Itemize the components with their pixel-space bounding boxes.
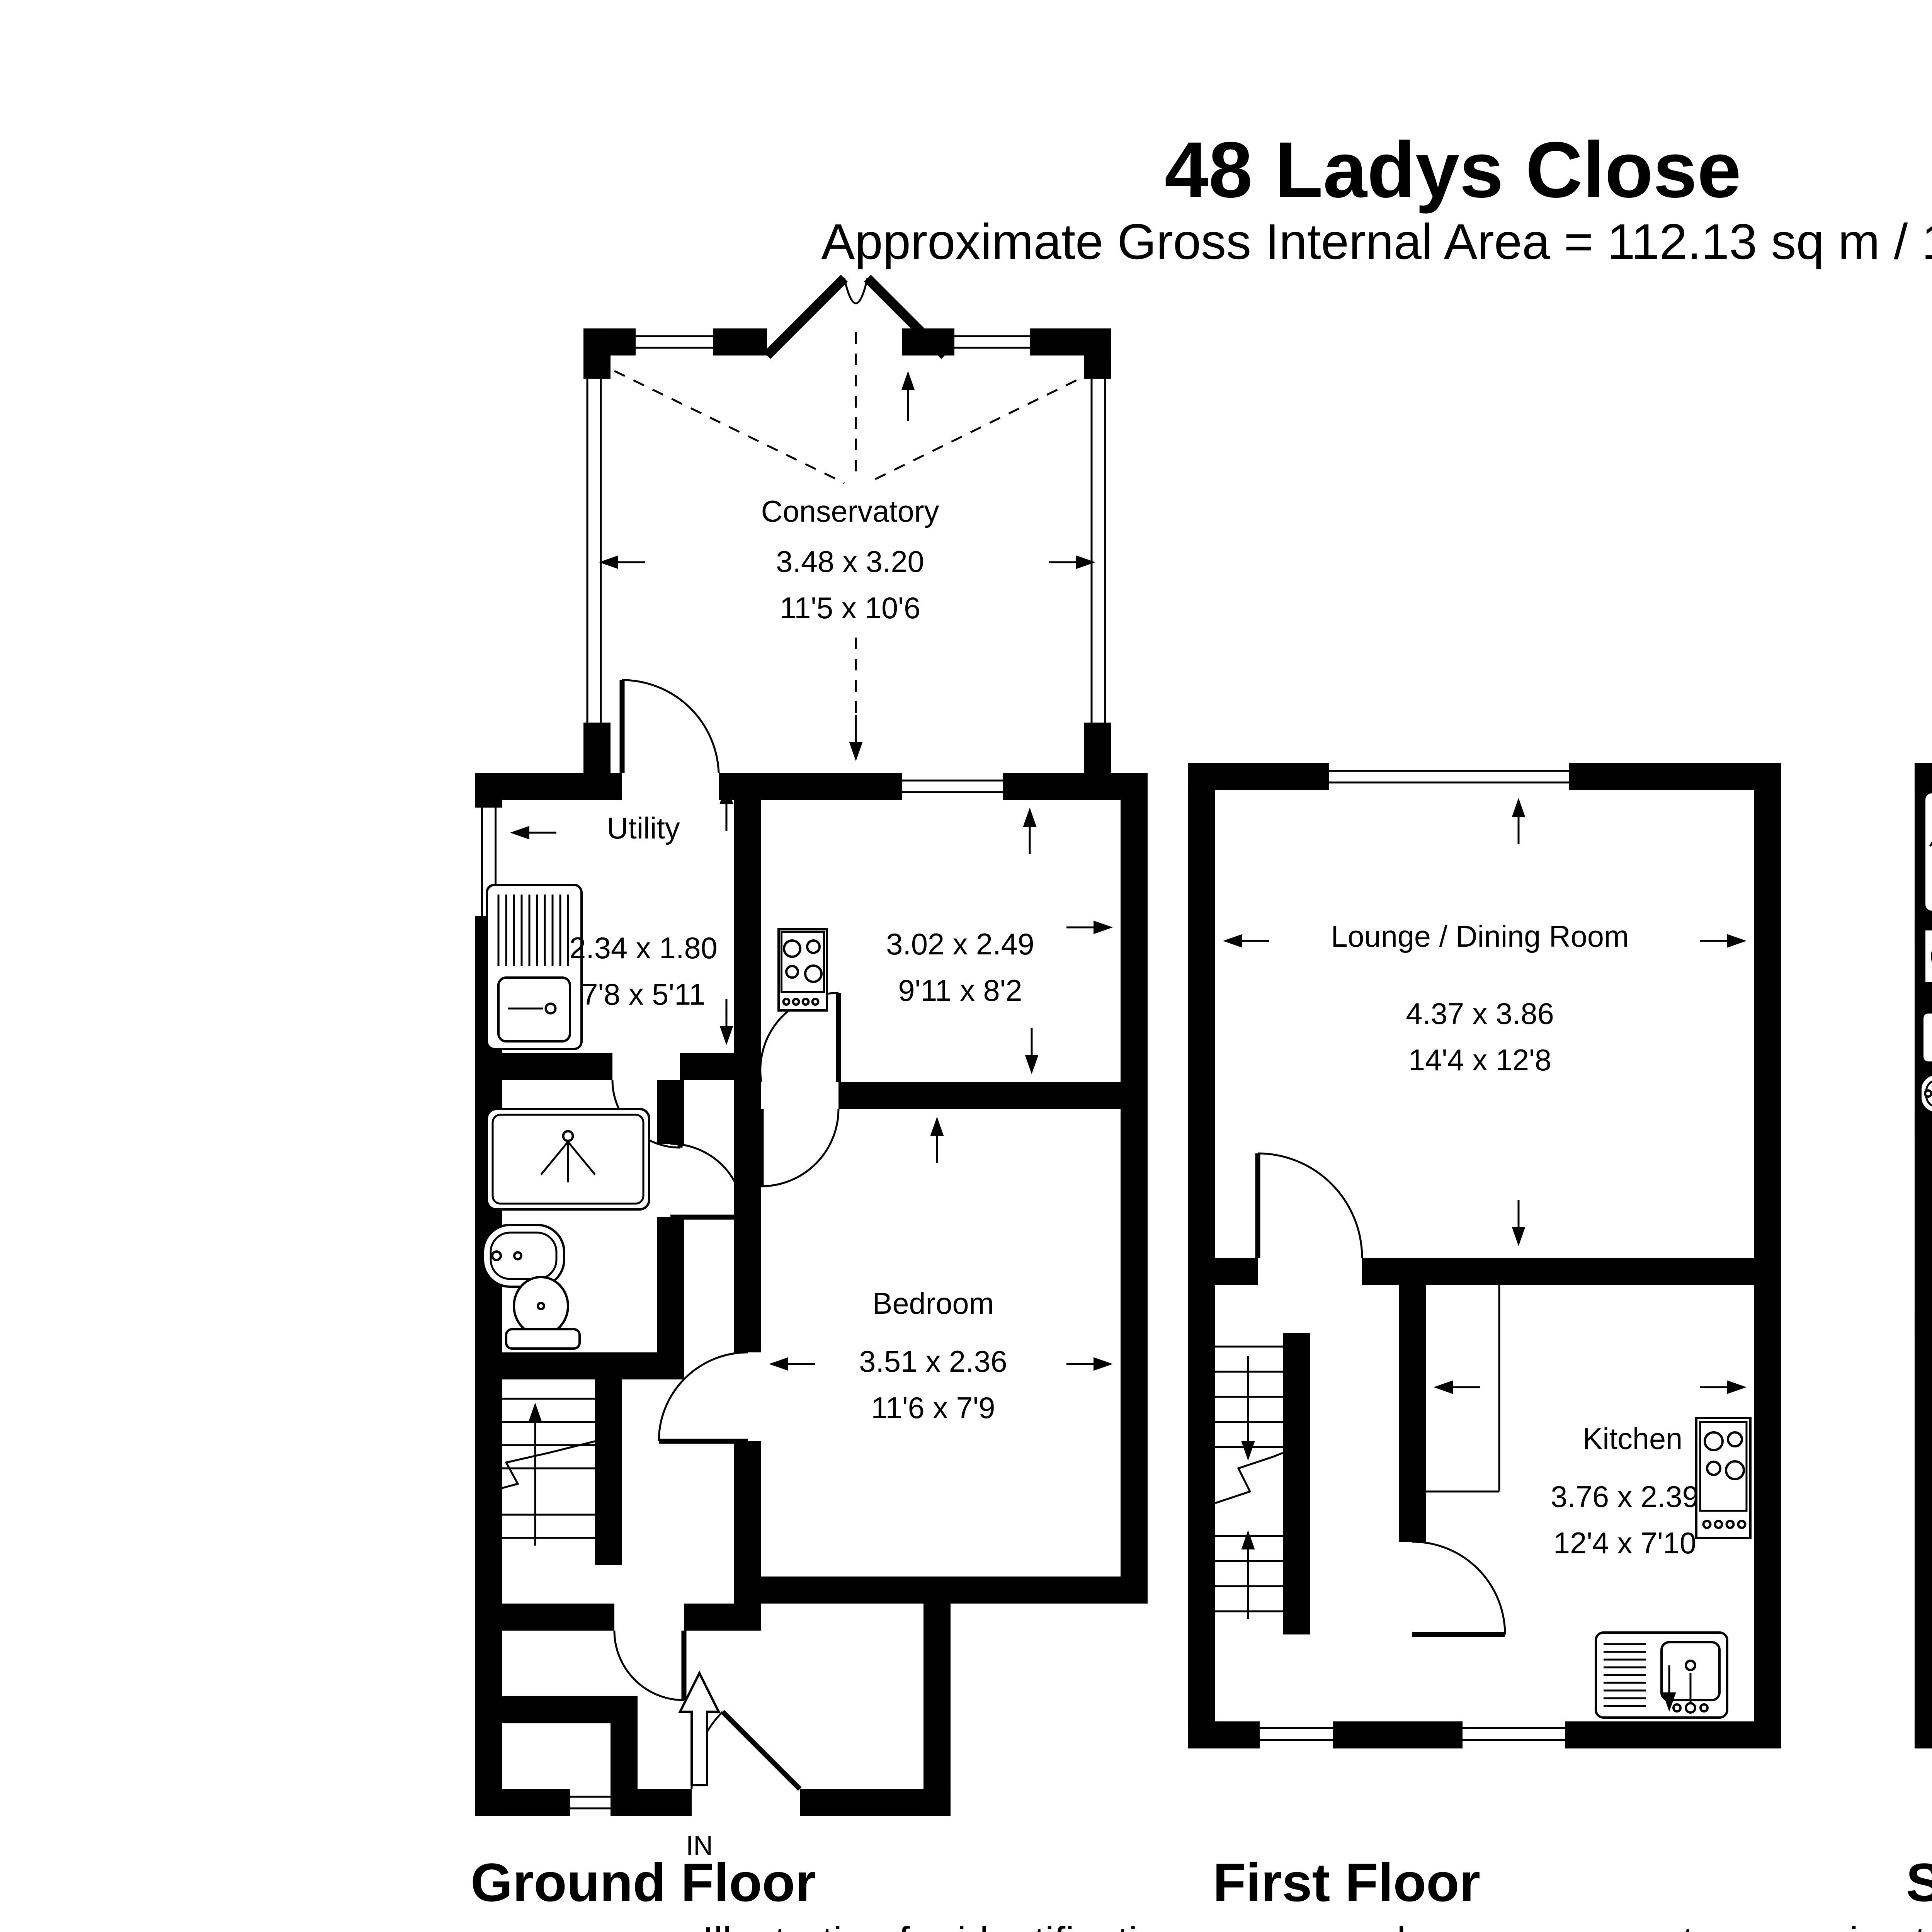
room-name: Bedroom — [872, 1287, 994, 1320]
header: 48 Ladys Close Approximate Gross Interna… — [821, 126, 1932, 270]
ground-floor-plan: Conservatory 3.48 x 3.20 11'5 x 10'6 Uti… — [475, 278, 1148, 1861]
lounge-labels: Lounge / Dining Room 4.37 x 3.86 14'4 x … — [1331, 920, 1629, 1077]
ground-bedroom-door — [761, 1109, 838, 1186]
ground-sink-icon — [483, 1225, 564, 1287]
room-dim-metric: 3.02 x 2.49 — [886, 928, 1034, 961]
room-dim-imperial: 14'4 x 12'8 — [1408, 1044, 1551, 1077]
room-dim-imperial: 9'11 x 8'2 — [898, 974, 1022, 1007]
bath-icon — [1924, 929, 1932, 983]
room-name: Utility — [607, 812, 680, 845]
second-floor-plan: Bedroom 3.78 x 2.57 12'5 x 8'5 Bedroom 3… — [1915, 763, 1932, 1748]
conservatory-windows — [587, 336, 1105, 723]
second-floor-label: Second Floor — [1906, 1852, 1932, 1913]
kitchen-labels: Kitchen 3.76 x 2.39 12'4 x 7'10 — [1551, 1422, 1699, 1560]
room-dim-imperial: 12'4 x 7'10 — [1553, 1527, 1696, 1560]
conservatory-door — [622, 680, 719, 773]
floorplan-drawing: 48 Ladys Close Approximate Gross Interna… — [0, 0, 1932, 1932]
lounge-door — [1258, 1153, 1362, 1258]
room-dim-imperial: 11'6 x 7'9 — [871, 1391, 995, 1425]
room-dim-metric: 3.76 x 2.39 — [1551, 1480, 1699, 1514]
room-name: Lounge / Dining Room — [1331, 920, 1629, 953]
first-floor-label: First Floor — [1213, 1852, 1480, 1913]
kitchen-hob-icon — [1696, 1418, 1750, 1538]
conservatory-labels: Conservatory 3.48 x 3.20 11'5 x 10'6 — [761, 495, 939, 625]
first-floor-stairs — [1215, 1347, 1283, 1619]
footer: Ground Floor First Floor Second Floor Il… — [471, 1852, 1932, 1932]
first-floor-plan: Lounge / Dining Room 4.37 x 3.86 14'4 x … — [1188, 763, 1781, 1748]
room-dim-imperial: 7'8 x 5'11 — [581, 978, 705, 1011]
ensuite-shower-icon — [1924, 792, 1932, 912]
room-dim-imperial: 11'5 x 10'6 — [780, 592, 920, 625]
room-name: Conservatory — [761, 495, 939, 528]
ground-shower-icon — [487, 1109, 649, 1209]
room-name: Kitchen — [1583, 1422, 1682, 1456]
room-dim-metric: 4.37 x 3.86 — [1406, 997, 1554, 1031]
utility-labels: Utility 2.34 x 1.80 7'8 x 5'11 — [569, 812, 717, 1011]
breakfast-room-labels: 3.02 x 2.49 9'11 x 8'2 — [886, 928, 1034, 1007]
room-dim-metric: 3.51 x 2.36 — [859, 1345, 1007, 1378]
floorplan-page: 48 Ladys Close Approximate Gross Interna… — [0, 0, 1932, 1932]
washing-machine-icon — [487, 885, 582, 1049]
room-dim-metric: 2.34 x 1.80 — [569, 932, 717, 965]
bathroom-toilet-icon — [1922, 1012, 1932, 1063]
page-subtitle: Approximate Gross Internal Area = 112.13… — [821, 213, 1932, 270]
porch-door — [614, 1631, 684, 1700]
ground-floor-label: Ground Floor — [471, 1852, 816, 1913]
ground-bedroom-labels: Bedroom 3.51 x 2.36 11'6 x 7'9 — [859, 1287, 1007, 1425]
kitchen-door — [1412, 1542, 1505, 1634]
ground-hob-icon — [779, 929, 827, 1010]
room-dim-metric: 3.48 x 3.20 — [776, 545, 924, 578]
kitchen-sink-icon — [1596, 1633, 1727, 1718]
page-title: 48 Ladys Close — [1165, 126, 1742, 214]
first-floor-walls — [1188, 763, 1781, 1748]
wc-door — [670, 1144, 744, 1217]
disclaimer-text: Illustration for identification purpose … — [702, 1919, 1932, 1932]
